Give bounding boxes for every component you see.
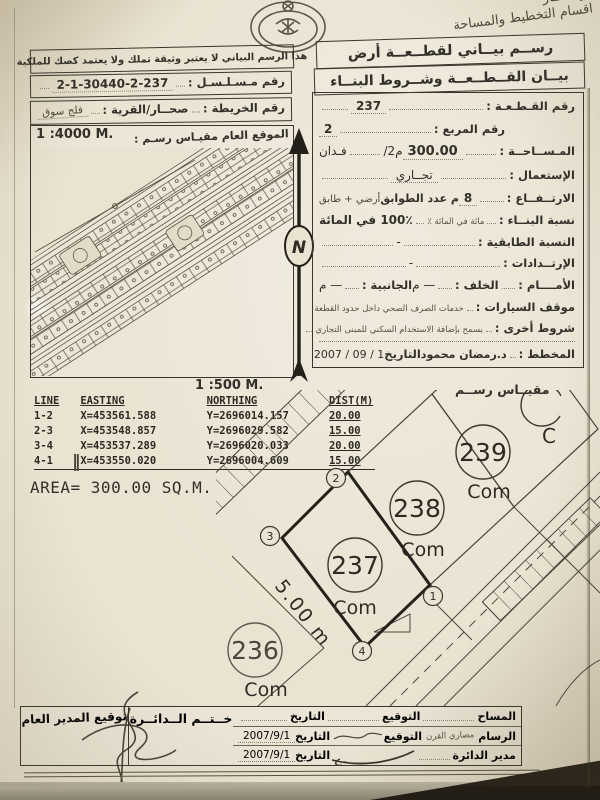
handwritten-tick: ‖ — [72, 452, 81, 472]
height-label: الارتــفــاع : — [507, 191, 575, 205]
partial-com-letter: C — [542, 424, 556, 448]
plot-238-com-label: Com — [401, 539, 444, 561]
director-date-label: التاريخ — [295, 749, 330, 762]
front-label: الأمــــام : — [518, 278, 575, 292]
field-setbacks: الإرتــدادات : - — [319, 254, 575, 270]
other-conditions-label: شروط أخرى : — [495, 321, 575, 335]
north-letter: N — [292, 238, 306, 258]
overview-map-title: الموقع العام مقيـاس رسـم : — [134, 127, 289, 145]
field-height: الارتــفــاع : 8 م عدد الطوابق أرضي + طا… — [319, 189, 575, 206]
height-floors-label: م عدد الطوابق — [380, 192, 459, 205]
form-title-2: بيــان القــطــعــة وشــروط البنــاء — [330, 67, 569, 89]
director-label: مدير الدائرة — [453, 749, 516, 762]
setbacks-value: - — [409, 256, 413, 270]
draftsman-signature-label: التوقيع — [384, 730, 423, 743]
field-floor-ratio: النسبة الطابقية : - — [319, 233, 575, 249]
plot-detail-diagram: 237 238 239 236 Com Com Com Com C 2 3 1 … — [216, 390, 600, 706]
build-ratio-label: نسبة البنــاء : — [499, 213, 575, 227]
area-total-text: AREA= 300.00 SQ.M. — [30, 478, 212, 497]
floor-ratio-label: النسبة الطابقية : — [478, 235, 575, 249]
area-unit-feddan: فـدان — [319, 144, 347, 158]
back-value: — م — [412, 278, 435, 292]
corner-2-number: 2 — [333, 472, 340, 485]
setbacks-label: الإرتــدادات : — [503, 256, 575, 270]
overview-map-scale: 1 :4000 M. — [36, 127, 113, 142]
parking-label: موقف السيارات : — [476, 300, 575, 314]
corner-1-number: 1 — [430, 590, 437, 603]
plot-238-number: 238 — [393, 494, 441, 523]
plot-236-number: 236 — [231, 636, 279, 665]
draftsman-date-value: 2007/9/1 — [238, 730, 295, 743]
planner-value: د.رمضان محمود — [421, 348, 507, 361]
partial-plot-circle — [521, 390, 561, 426]
corner-3-number: 3 — [267, 530, 274, 543]
field-front-back-side: الأمــــام : الخلف : — م الجانبية : — م — [319, 276, 575, 292]
plot-details-form: رقم القـطـعـة : 237 رقم المربع : 2 المـس… — [312, 92, 584, 368]
col-easting: EASTING — [80, 394, 200, 409]
plot-237-number: 237 — [331, 551, 379, 580]
plot-number-value: 237 — [351, 99, 386, 114]
draftsman-handwritten-name: مصاري القرن — [426, 730, 474, 742]
field-square-number: رقم المربع : 2 — [319, 120, 575, 137]
serial-number-box: رقم مـسـلـسـل : 2-1-30440-2-237 — [30, 71, 292, 99]
height-value: 8 — [459, 191, 477, 206]
plot-239-number: 239 — [459, 438, 507, 467]
area-label: المـســاحــة : — [499, 144, 575, 158]
plot-number-label: رقم القـطـعـة : — [486, 99, 575, 113]
planner-date-label: التاريخ — [384, 347, 421, 361]
square-number-label: رقم المربع : — [434, 122, 505, 136]
field-area: المـســاحــة : 300.00 /م2 فـدان — [319, 142, 575, 160]
build-ratio-value: 100٪ في المائة — [319, 213, 413, 227]
disclaimer-text: هذا الرسم البياني لا يعتبر وثيقة تملك ول… — [17, 50, 308, 67]
page-right-edge-shadow — [586, 88, 590, 788]
col-line: LINE — [34, 394, 74, 409]
height-floors-note: أرضي + طابق — [319, 194, 380, 205]
square-number-value: 2 — [319, 122, 337, 137]
draftsman-date-label: التاريخ — [295, 730, 330, 743]
draftsman-label: الرسام — [478, 730, 516, 743]
corner-4-number: 4 — [359, 645, 366, 658]
use-label: الإستعمال : — [509, 168, 575, 182]
surveyor-label: المساح — [477, 710, 516, 723]
use-value: تجــاري — [391, 168, 438, 183]
area-value: 300.00 — [403, 144, 463, 160]
parking-ladder-top-left — [216, 390, 381, 530]
plot-237-com-label: Com — [333, 597, 376, 619]
floor-ratio-value: - — [396, 235, 400, 249]
map-number-label: رقم الخريطة : — [203, 100, 285, 115]
plot-239-com-label: Com — [467, 481, 510, 503]
area-unit: /م2 — [383, 144, 402, 158]
parking-value: خدمات الصرف الصحي داخل حدود القطعة — [314, 304, 463, 314]
overview-map-frame: 1 :4000 M. الموقع العام مقيـاس رسـم : — [30, 125, 294, 378]
side-value: — م — [319, 278, 342, 292]
surveyor-row: المساح التوقيع التاريخ — [233, 707, 521, 727]
surveyor-date-label: التاريخ — [290, 710, 325, 723]
field-other-conditions: شروط أخرى : يسمح بإضافة الاستخدام السكني… — [319, 319, 575, 335]
parking-ladder-right — [482, 498, 600, 621]
serial-label: رقم مـسـلـسـل : — [188, 74, 285, 90]
field-build-ratio: نسبة البنــاء : مائة في المائة ٪ 100٪ في… — [319, 211, 575, 227]
build-ratio-note: مائة في المائة ٪ — [427, 217, 484, 227]
plot-236-com-label: Com — [244, 679, 287, 701]
signature-rows: المساح التوقيع التاريخ الرسام مصاري القر… — [233, 707, 521, 765]
side-label: الجانبية : — [362, 278, 412, 292]
serial-value: 2-1-30440-2-237 — [51, 76, 173, 93]
overview-map-drawing — [31, 148, 293, 376]
planner-label: المخطط : — [519, 347, 575, 361]
planner-date-value: 2007 / 09 / 1 — [314, 348, 384, 361]
village-handwritten-value: فلج سوق — [37, 104, 89, 120]
field-plot-number: رقم القـطـعـة : 237 — [319, 97, 575, 114]
field-planner: المخطط : د.رمضان محمود التاريخ 2007 / 09… — [319, 341, 575, 361]
field-parking: موقف السيارات : خدمات الصرف الصحي داخل ح… — [319, 298, 575, 314]
other-conditions-value: يسمح بإضافة الاستخدام السكني للمبنى التج… — [315, 325, 482, 335]
director-date-value: 2007/9/1 — [238, 749, 295, 762]
page-fold-line — [14, 8, 15, 708]
draftsman-row: الرسام مصاري القرن التوقيع التاريخ 2007/… — [233, 727, 521, 747]
draftsman-signature-scribble — [332, 729, 381, 743]
back-label: الخلف : — [455, 278, 499, 292]
map-number-box: رقم الخريطة : صحــار/القرية : فلج سوق — [30, 97, 292, 125]
director-signature-scribble — [330, 747, 416, 765]
map-number-value: صحــار/القرية : — [102, 102, 188, 117]
field-use: الإستعمال : تجــاري — [319, 166, 575, 183]
director-row: مدير الدائرة التاريخ 2007/9/1 — [233, 746, 521, 765]
surveyor-signature-label: التوقيع — [382, 710, 421, 723]
form-title-1: رســم بيــاني لقطــعــة أرض — [348, 40, 554, 62]
